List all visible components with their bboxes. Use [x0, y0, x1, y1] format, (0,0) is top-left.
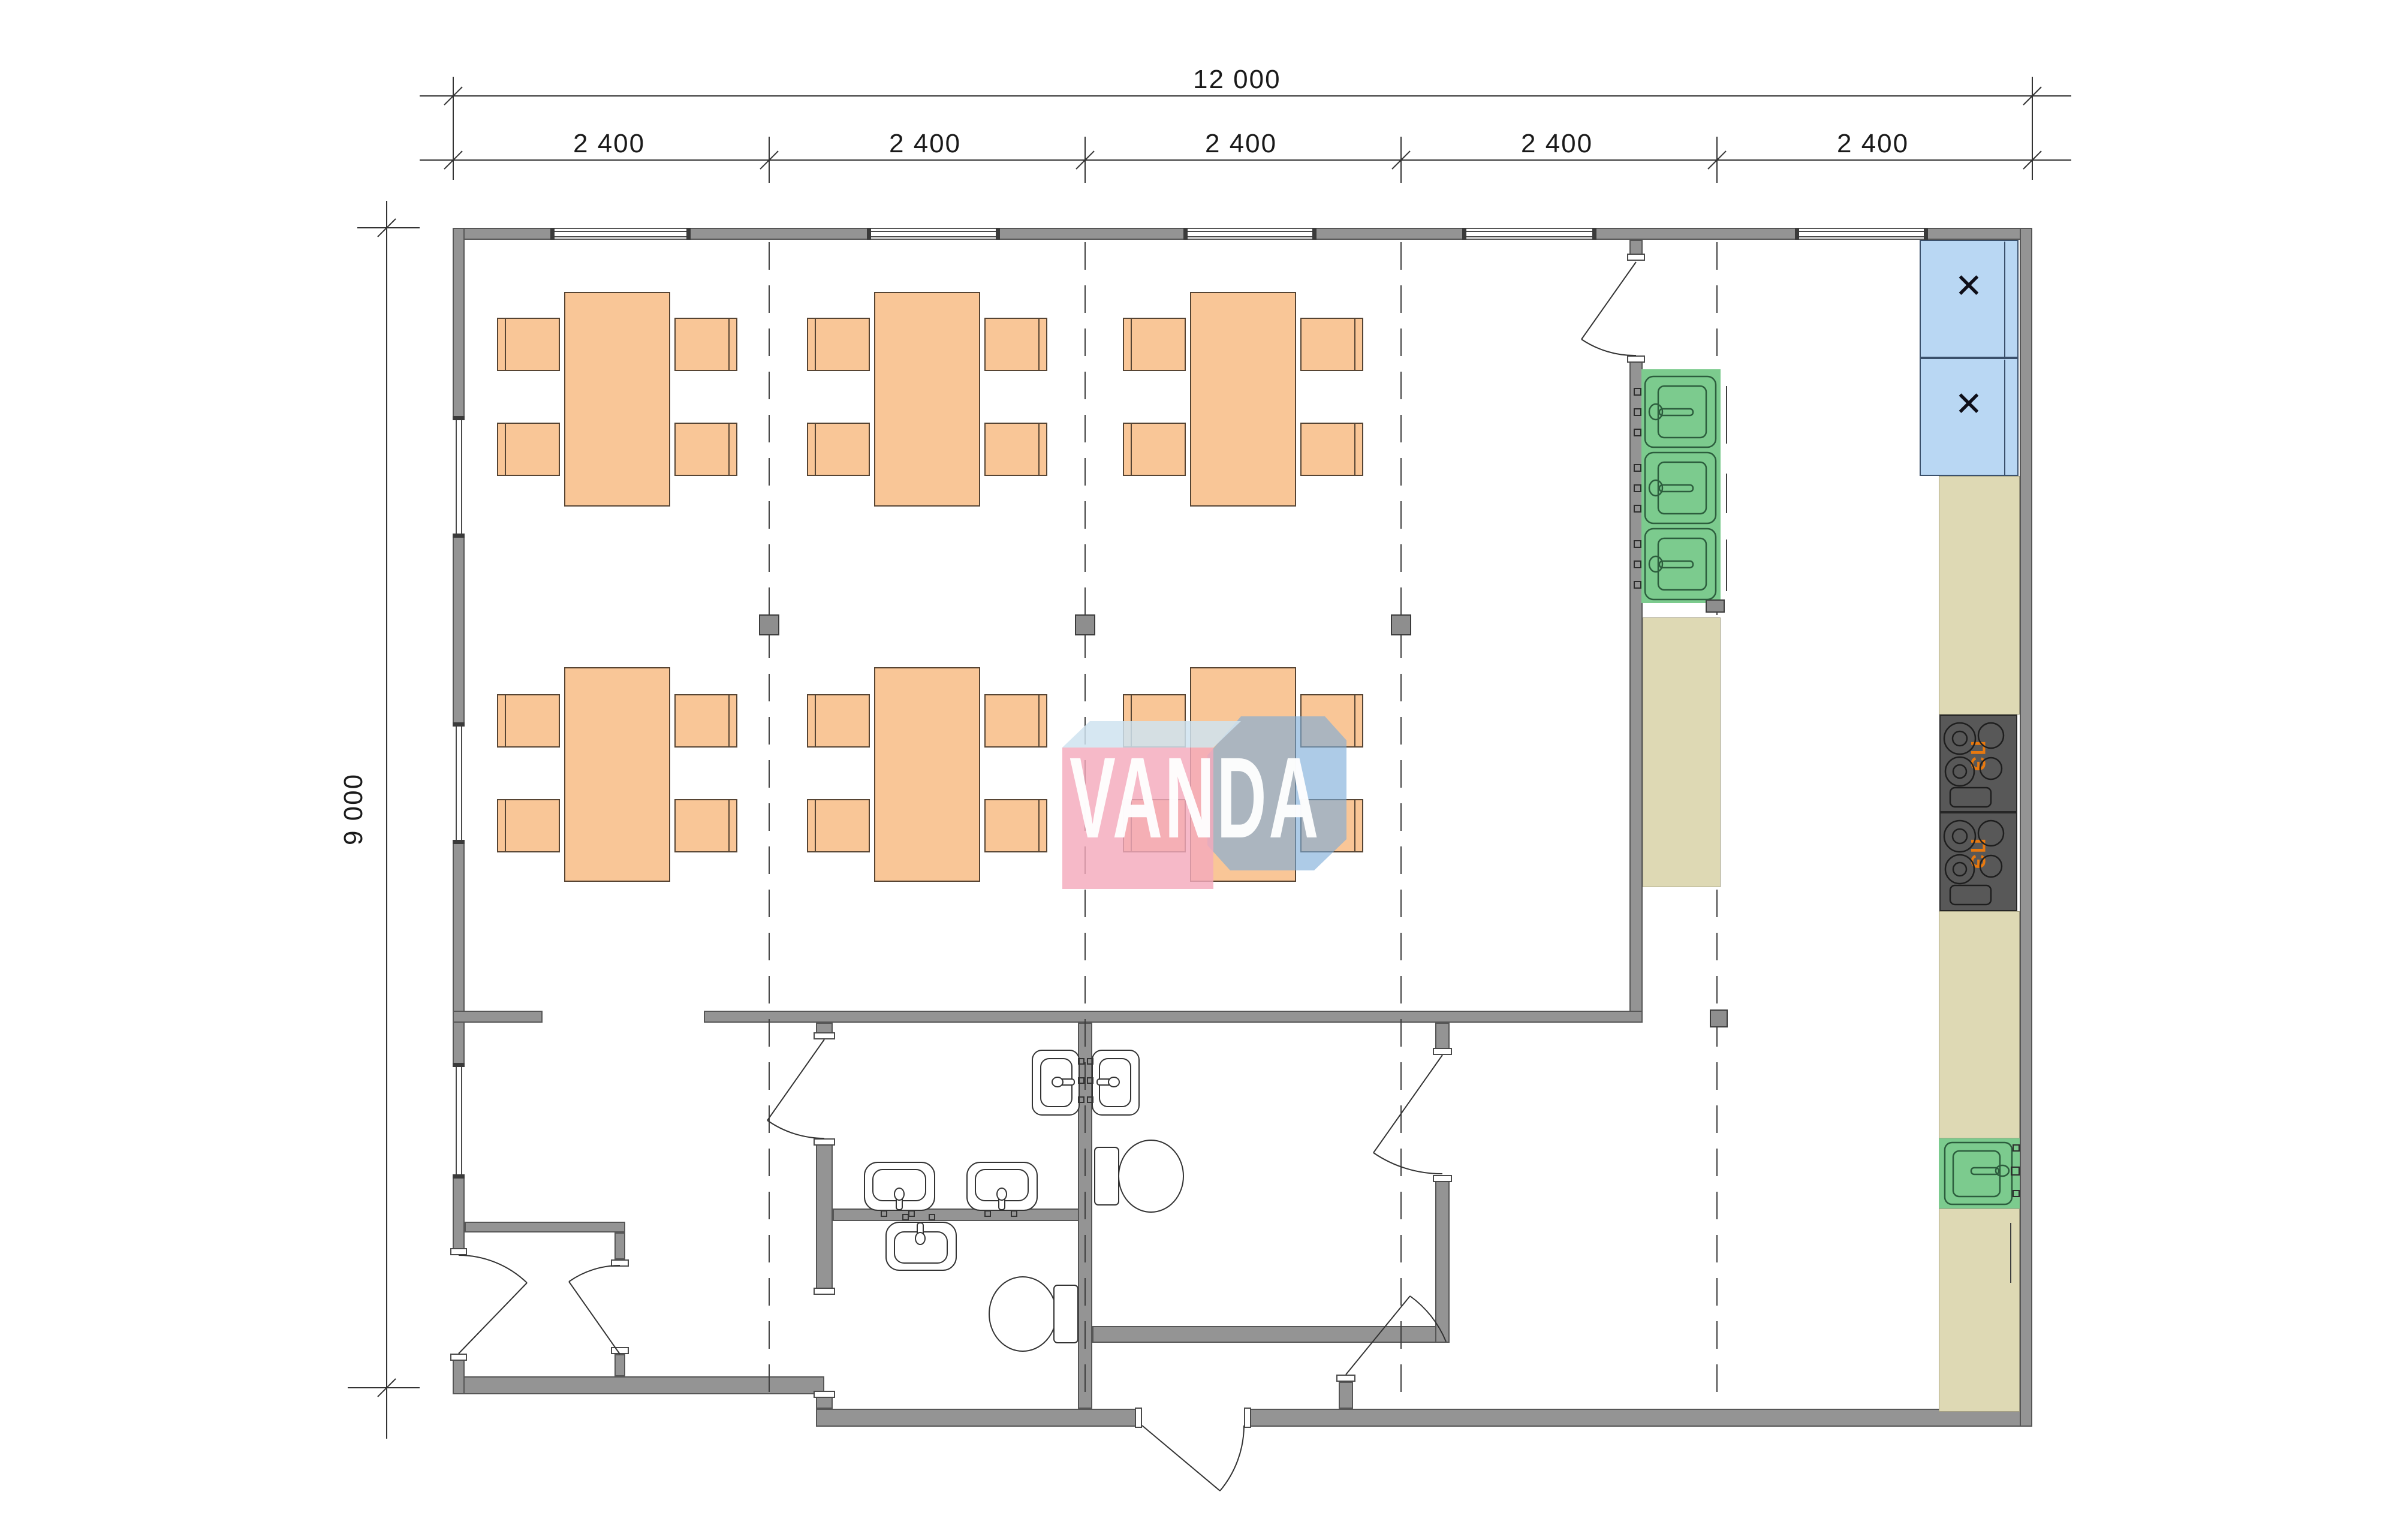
- dim-overall-width: 12 000: [1193, 65, 1281, 95]
- exterior-wall: [1244, 1409, 2032, 1427]
- exterior-wall: [2020, 228, 2032, 1427]
- chair: [1123, 318, 1186, 371]
- dining-table: [874, 292, 980, 507]
- chair: [674, 694, 737, 748]
- chair: [984, 799, 1047, 852]
- interior-wall: [1078, 1023, 1092, 1409]
- chair: [674, 423, 737, 476]
- chair: [984, 318, 1047, 371]
- window: [1798, 229, 1924, 239]
- dim-segment: 2 400: [1521, 129, 1593, 159]
- chair: [984, 694, 1047, 748]
- chair: [497, 318, 560, 371]
- door-jamb: [611, 1347, 629, 1354]
- column: [1710, 1009, 1728, 1027]
- column: [759, 614, 779, 635]
- dim-overall-height: 9 000: [339, 773, 369, 845]
- column: [1706, 599, 1725, 613]
- floor-plan: ✕ ✕ ПЭ ПЭ: [0, 0, 2398, 1540]
- window: [454, 726, 463, 840]
- door-jamb: [450, 1248, 467, 1255]
- exterior-wall: [453, 1175, 465, 1255]
- sink-block: [1641, 369, 1721, 603]
- door-jamb: [1627, 355, 1645, 363]
- dining-table: [564, 292, 670, 507]
- washbasin-icon: [886, 1214, 956, 1270]
- dim-segment: 2 400: [1837, 129, 1909, 159]
- chair: [674, 318, 737, 371]
- door-jamb: [1433, 1175, 1452, 1182]
- interior-wall: [833, 1209, 1083, 1221]
- column: [1391, 614, 1411, 635]
- chair: [807, 423, 870, 476]
- sink-block: [1939, 1138, 2020, 1209]
- door-jamb: [1244, 1408, 1251, 1428]
- chair: [1123, 423, 1186, 476]
- exterior-wall: [453, 534, 465, 726]
- door-jamb: [814, 1288, 835, 1295]
- door-jamb: [814, 1391, 835, 1398]
- window: [454, 420, 463, 534]
- toilet-icon: [989, 1277, 1078, 1351]
- interior-wall: [465, 1222, 625, 1232]
- stove-label: ПЭ: [1966, 827, 1990, 881]
- chair: [807, 318, 870, 371]
- exterior-wall: [453, 840, 465, 1066]
- exterior-wall: [453, 1376, 824, 1394]
- fridge-x-mark: ✕: [1944, 266, 1994, 308]
- kitchen-counter: [1939, 911, 2020, 1138]
- door-jamb: [611, 1259, 629, 1267]
- interior-wall: [816, 1138, 833, 1295]
- interior-wall: [1092, 1326, 1450, 1343]
- window: [454, 1066, 463, 1175]
- stove-label: ПЭ: [1966, 730, 1990, 783]
- door-jamb: [1627, 254, 1645, 261]
- chair: [1300, 423, 1363, 476]
- kitchen-counter: [1939, 476, 2020, 715]
- interior-wall: [614, 1354, 625, 1376]
- chair: [674, 799, 737, 852]
- door-jamb: [1135, 1408, 1142, 1428]
- dining-table: [874, 667, 980, 882]
- kitchen-counter: [1939, 1209, 2020, 1412]
- chair: [497, 799, 560, 852]
- dim-segment: 2 400: [573, 129, 645, 159]
- chair: [807, 694, 870, 748]
- interior-wall: [614, 1232, 625, 1259]
- exterior-wall: [816, 1409, 1142, 1427]
- interior-wall: [1339, 1382, 1353, 1409]
- dining-table: [564, 667, 670, 882]
- window: [554, 229, 687, 239]
- exterior-wall: [453, 228, 465, 420]
- vanda-watermark: VANDA: [1062, 716, 1346, 890]
- dining-table: [1190, 292, 1296, 507]
- column: [1075, 614, 1095, 635]
- dim-segment: 2 400: [1205, 129, 1277, 159]
- interior-wall: [704, 1011, 1643, 1023]
- chair: [807, 799, 870, 852]
- window: [870, 229, 996, 239]
- interior-wall: [1435, 1175, 1450, 1343]
- door-jamb: [450, 1354, 467, 1361]
- window: [1466, 229, 1593, 239]
- chair: [1300, 318, 1363, 371]
- interior-wall: [453, 1011, 543, 1023]
- vanda-logo-text: VANDA: [1070, 740, 1321, 855]
- door-jamb: [1433, 1048, 1452, 1055]
- interior-wall: [1629, 355, 1643, 1023]
- chair: [984, 423, 1047, 476]
- dim-segment: 2 400: [889, 129, 961, 159]
- chair: [497, 694, 560, 748]
- door-jamb: [814, 1032, 835, 1039]
- door-jamb: [814, 1138, 835, 1146]
- door-jamb: [1336, 1375, 1355, 1382]
- toilet-icon: [1095, 1140, 1183, 1212]
- fridge-x-mark: ✕: [1944, 384, 1994, 426]
- chair: [497, 423, 560, 476]
- kitchen-counter: [1643, 617, 1721, 887]
- window: [1187, 229, 1313, 239]
